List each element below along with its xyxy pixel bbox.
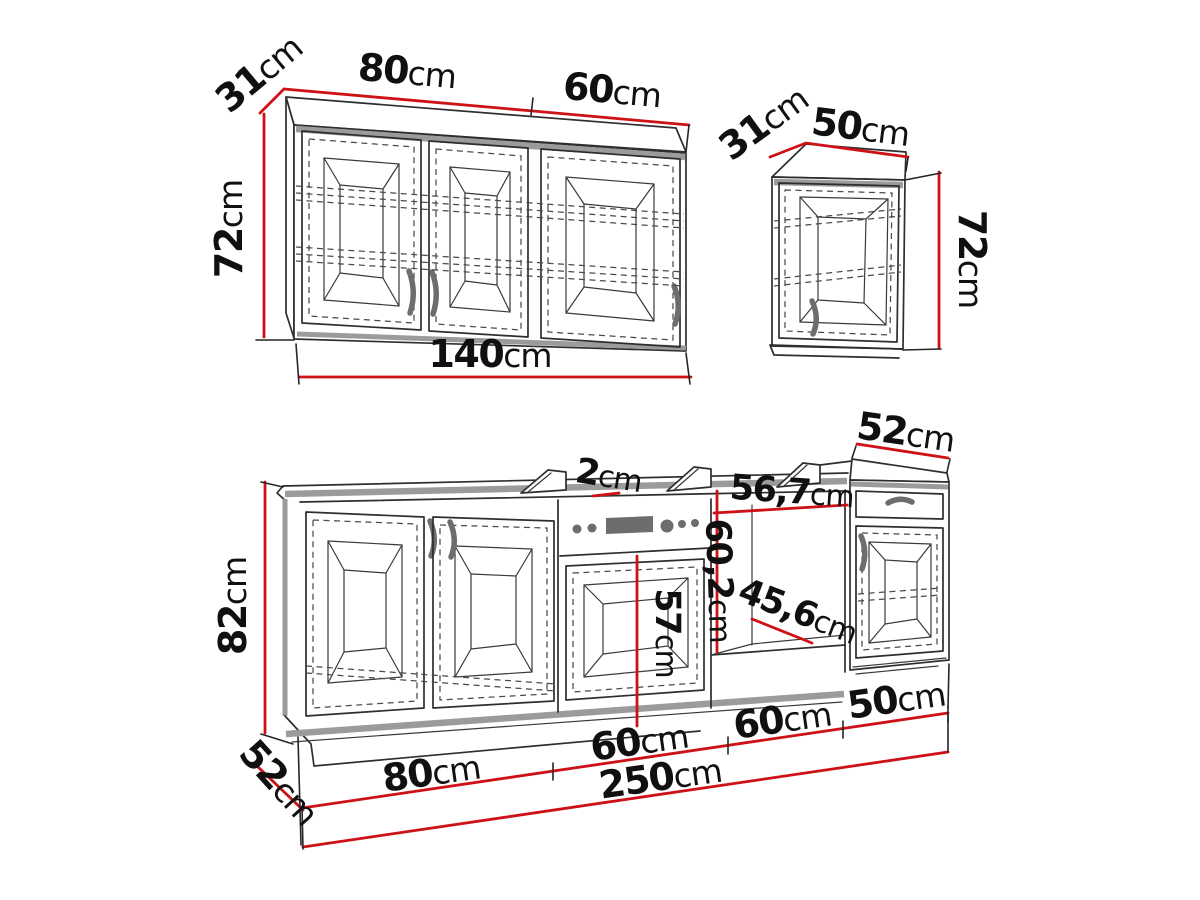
dim-label-width-80: 80cm <box>356 45 458 97</box>
door-handle <box>450 522 454 557</box>
drawer-cabinet <box>850 459 949 674</box>
dim-label-section-50: 50cm <box>845 671 948 728</box>
dim-label-worktop-2: 2cm <box>573 451 645 501</box>
dim-label-niche-width-567: 56,7cm <box>728 468 855 517</box>
base-cabinet-door <box>433 517 554 708</box>
dim-label-height-82: 82cm <box>211 557 255 655</box>
cabinet-left-side <box>286 97 294 338</box>
base-cabinet-run: 82cm 52cm 2cm 56,7cm 60,2cm 45,6cm 57cm … <box>211 404 957 849</box>
oven-knob <box>661 520 674 533</box>
base-cabinet-door <box>306 512 434 716</box>
dim-label-niche-height-602: 60,2cm <box>697 518 741 643</box>
kitchen-dimension-diagram: 31cm 80cm 60cm 72cm 140cm 31cm 50cm 72cm <box>0 0 1200 900</box>
dim-label-section-80: 80cm <box>380 744 483 801</box>
dim-label-oven-57: 57cm <box>647 588 687 677</box>
dim-label-cabinet-depth-52: 52cm <box>854 404 957 461</box>
dim-label-width-60: 60cm <box>561 64 663 116</box>
wall-cabinet-50: 31cm 50cm 72cm <box>711 76 994 358</box>
dim-label-height-72: 72cm <box>207 180 251 278</box>
dim-label-total-140: 140cm <box>428 332 551 376</box>
shelf-dashed-lines <box>306 666 556 691</box>
wall-cabinet-140: 31cm 80cm 60cm 72cm 140cm <box>207 25 691 384</box>
oven-control-panel <box>573 516 700 534</box>
cabinet-front-face <box>294 125 686 351</box>
oven-knob <box>678 520 686 528</box>
oven-display <box>606 516 653 534</box>
dim-label-depth-52: 52cm <box>230 731 328 833</box>
oven-knob <box>573 525 582 534</box>
diagram-canvas: 31cm 80cm 60cm 72cm 140cm 31cm 50cm 72cm <box>0 0 1200 900</box>
dim-label-height-72: 72cm <box>950 210 994 308</box>
oven-knob <box>588 524 597 533</box>
